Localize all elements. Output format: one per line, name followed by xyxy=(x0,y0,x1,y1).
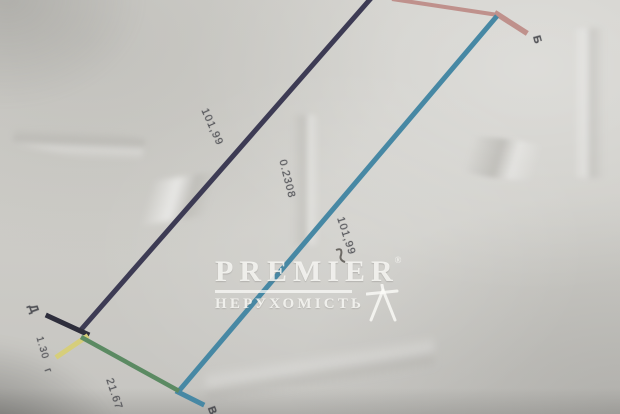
watermark-subtitle-text: НЕРУХОМІСТЬ xyxy=(215,297,364,312)
watermark: PREMIER ® НЕРУХОМІСТЬ xyxy=(215,257,430,324)
corner-d-tick xyxy=(48,316,87,334)
watermark-divider xyxy=(215,290,352,293)
registered-trademark-icon: ® xyxy=(395,255,402,265)
watermark-brand-text: PREMIER xyxy=(215,257,399,287)
corner-b-tick xyxy=(497,14,525,32)
boundary-lines-svg xyxy=(0,0,620,414)
east-boundary-line xyxy=(178,16,497,392)
compass-logo-icon xyxy=(366,284,400,324)
north-boundary-line xyxy=(392,0,498,15)
plot-plan-photo: 101,99 0.2308 101,99 Б Д 1.30 г 21.67 В … xyxy=(0,0,620,414)
corner-v-tick xyxy=(178,392,202,404)
south-boundary-line xyxy=(81,337,179,391)
